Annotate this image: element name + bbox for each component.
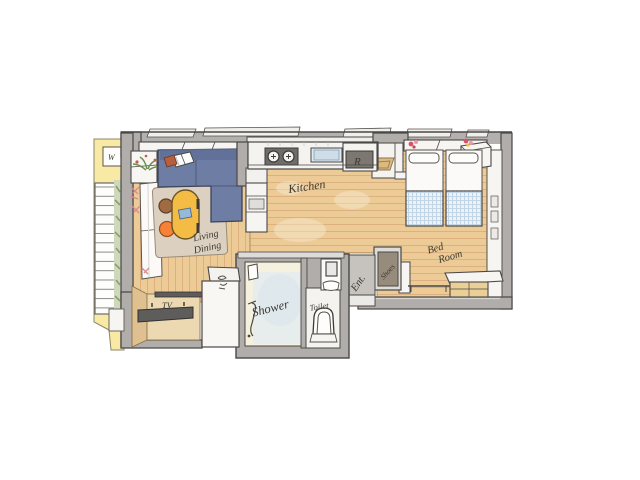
svg-text:R: R — [353, 156, 361, 168]
